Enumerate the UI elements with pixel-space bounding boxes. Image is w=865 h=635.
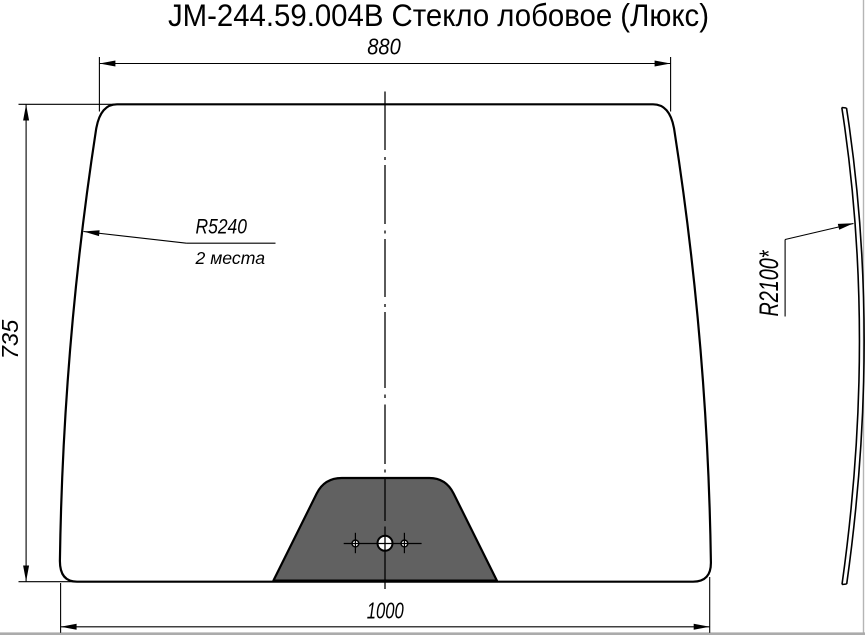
svg-text:735: 735 xyxy=(0,320,23,360)
svg-text:R5240: R5240 xyxy=(196,216,248,239)
svg-text:1000: 1000 xyxy=(367,598,404,624)
svg-text:2 места: 2 места xyxy=(194,248,265,268)
svg-text:R2100*: R2100* xyxy=(754,249,784,316)
svg-text:JM-244.59.004B Стекло лобовое: JM-244.59.004B Стекло лобовое (Люкс) xyxy=(168,0,709,33)
svg-text:880: 880 xyxy=(367,34,401,60)
